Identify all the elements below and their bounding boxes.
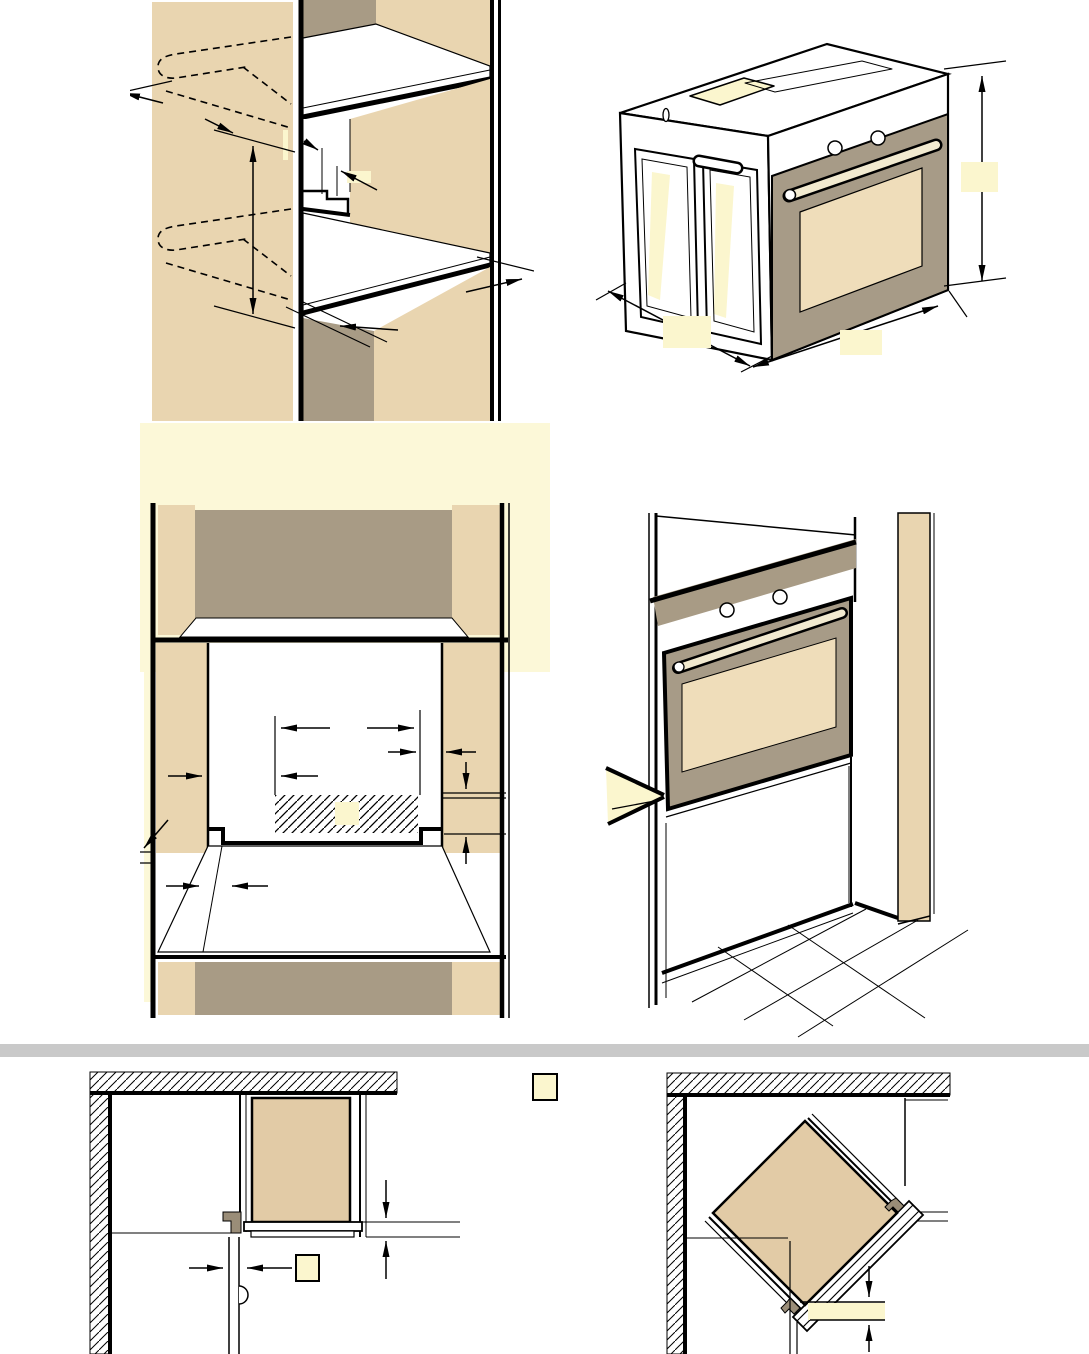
- side-slot: [663, 109, 669, 122]
- shelf-cutout-drawing: [130, 0, 534, 421]
- corner-bracket: [223, 1212, 241, 1233]
- wall-pillar: [898, 513, 930, 921]
- corner-diagonal-drawing: [667, 1073, 950, 1354]
- figure-corner-diagonal-plan: [655, 1060, 1055, 1354]
- oven-body-plan: [252, 1098, 350, 1222]
- wall-left-hatch: [667, 1095, 685, 1354]
- lower-back-panel: [195, 962, 452, 1015]
- door-handle-bump: [239, 1286, 248, 1304]
- control-knob-icon: [720, 603, 734, 617]
- figure-oven-installed: [590, 495, 1040, 1040]
- depth-label-placeholder: [663, 316, 711, 348]
- control-knob-icon: [773, 590, 787, 604]
- back-panel-bottom: [303, 318, 374, 421]
- worktop: [158, 846, 490, 952]
- corner-plan-drawing: [90, 1072, 557, 1354]
- wall-top-hatch: [667, 1073, 950, 1095]
- lower-right-column: [452, 962, 502, 1015]
- figure-oven-isometric: [580, 30, 1040, 400]
- upper-shelf: [180, 618, 468, 637]
- figure-niche-front: [140, 495, 560, 1040]
- niche-front-drawing: [140, 503, 509, 1018]
- vent-label-placeholder: [335, 802, 359, 825]
- niche-left-column: [156, 643, 208, 853]
- wall-top-hatch: [90, 1072, 397, 1093]
- lower-left-column: [158, 962, 195, 1015]
- recess-strip: [303, 119, 350, 223]
- manual-page: [0, 0, 1089, 1354]
- side-panel: [152, 2, 293, 421]
- section-divider: [0, 1044, 1089, 1057]
- control-knob-icon: [828, 141, 842, 155]
- legend-label-placeholder: [533, 1074, 557, 1100]
- width-label-placeholder: [840, 330, 882, 355]
- upper-back-panel: [195, 510, 452, 618]
- figure-corner-plan: [85, 1060, 565, 1354]
- gap-label-placeholder: [296, 1255, 319, 1281]
- counter-strip-highlight: [808, 1303, 885, 1320]
- height-label-placeholder: [961, 162, 998, 192]
- upper-right-column: [452, 505, 502, 635]
- hidden-label-sliver: [283, 130, 288, 160]
- oven-isometric-drawing: [596, 44, 1006, 372]
- control-knob-icon: [871, 131, 885, 145]
- niche-right-column: [442, 643, 502, 853]
- oven-door-plan: [244, 1222, 362, 1231]
- upper-left-column: [158, 505, 195, 635]
- oven-installed-drawing: [606, 513, 968, 1037]
- wall-left-hatch: [90, 1093, 110, 1354]
- figure-shelf-cutout: [130, 0, 534, 430]
